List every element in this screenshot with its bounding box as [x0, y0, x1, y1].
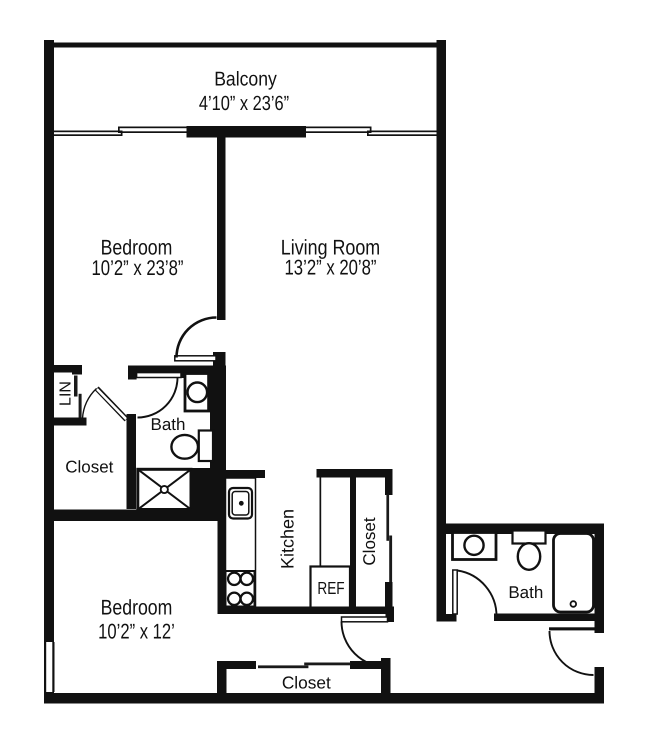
svg-text:4’10” x 23’6”: 4’10” x 23’6”	[199, 92, 289, 115]
svg-text:Closet: Closet	[65, 458, 113, 477]
svg-text:13’2” x 20’8”: 13’2” x 20’8”	[284, 255, 376, 279]
svg-text:Closet: Closet	[282, 673, 331, 693]
svg-text:Bedroom: Bedroom	[101, 596, 173, 620]
svg-text:LIN: LIN	[58, 381, 75, 406]
svg-text:Balcony: Balcony	[214, 69, 277, 91]
svg-text:Closet: Closet	[360, 517, 379, 565]
svg-text:Kitchen: Kitchen	[278, 509, 298, 569]
svg-text:Bath: Bath	[151, 415, 186, 434]
svg-text:10’2” x 12’: 10’2” x 12’	[98, 619, 175, 643]
svg-text:Bath: Bath	[508, 583, 543, 602]
svg-text:10’2” x 23’8”: 10’2” x 23’8”	[91, 256, 183, 280]
svg-text:REF: REF	[317, 578, 344, 598]
